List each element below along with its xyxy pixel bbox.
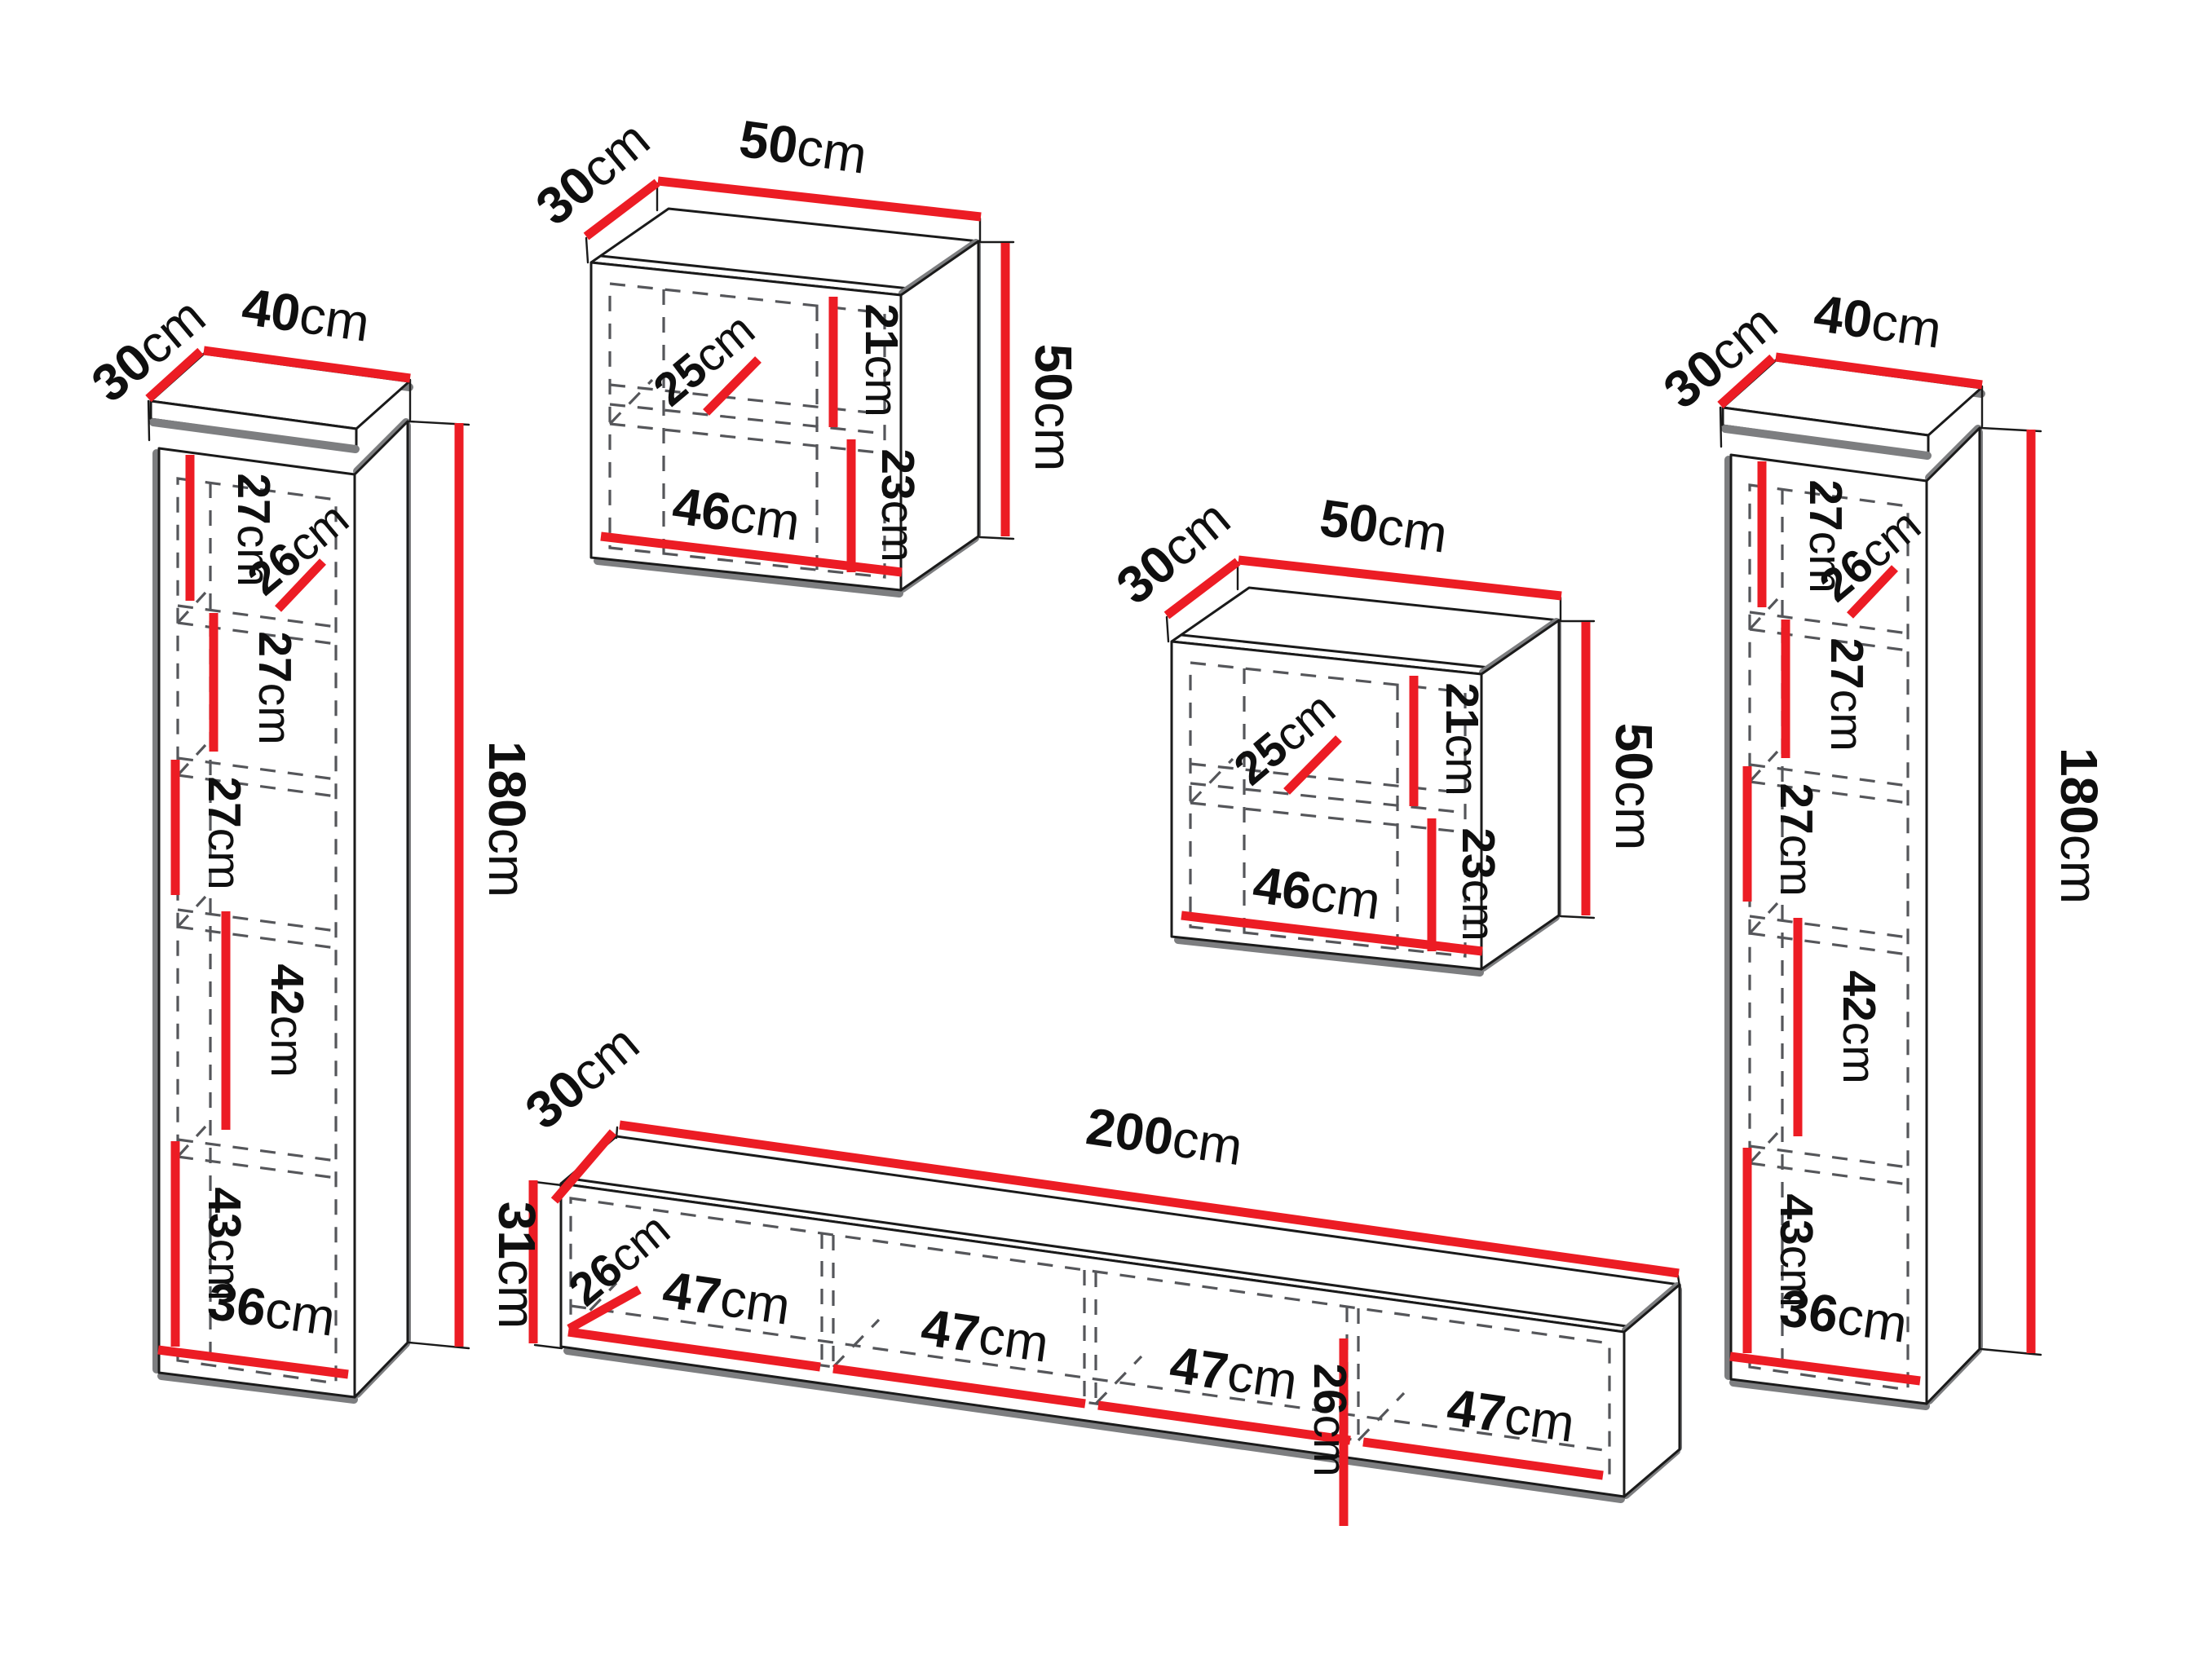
height-label: 50cm bbox=[1605, 723, 1663, 851]
height-label: 180cm bbox=[478, 741, 536, 897]
shelf2-label: 27cm bbox=[1821, 637, 1873, 751]
shelf3-label: 27cm bbox=[198, 776, 250, 889]
wall-cabinet-middle: 30cm 50cm 50cm 21cm 25cm 23cm 46cm bbox=[1106, 488, 1663, 972]
upper-section-label: 21cm bbox=[1436, 682, 1488, 796]
height-label: 31cm bbox=[488, 1202, 546, 1329]
inner-height-label: 26cm bbox=[1304, 1363, 1356, 1476]
wall-cabinet-top: 30cm 50cm 50cm 21cm 25cm 23cm 46cm bbox=[525, 109, 1083, 593]
depth-label: 30cm bbox=[1106, 488, 1241, 615]
upper-section-label: 21cm bbox=[855, 303, 907, 417]
width-label: 200cm bbox=[1083, 1096, 1246, 1176]
width-label: 50cm bbox=[1317, 488, 1451, 564]
height-label: 50cm bbox=[1024, 344, 1083, 472]
depth-label: 30cm bbox=[525, 109, 660, 236]
depth-label: 30cm bbox=[514, 1013, 650, 1140]
diagram-canvas: 30cm 40cm 180cm 27cm 26cm 27cm 27cm 42cm… bbox=[0, 0, 2212, 1658]
cabinet-side-face bbox=[355, 421, 408, 1397]
shelf4-label: 42cm bbox=[1833, 970, 1885, 1083]
width-label: 50cm bbox=[736, 109, 871, 185]
right-tall-cabinet: 30cm 40cm 180cm 27cm 26cm 27cm 27cm 42cm… bbox=[1653, 284, 2108, 1406]
furniture-dimensions-diagram: 30cm 40cm 180cm 27cm 26cm 27cm 27cm 42cm… bbox=[0, 0, 2212, 1658]
shelf3-label: 27cm bbox=[1770, 783, 1822, 896]
width-label: 40cm bbox=[239, 277, 373, 353]
height-label: 180cm bbox=[2050, 747, 2108, 904]
tv-stand: 30cm 200cm 31cm 26cm 47cm 47cm 47cm 47cm… bbox=[488, 1013, 1680, 1526]
lower-section-label: 23cm bbox=[872, 448, 924, 562]
cabinet-side-face bbox=[1927, 428, 1980, 1404]
shelf4-label: 42cm bbox=[261, 963, 313, 1077]
left-tall-cabinet: 30cm 40cm 180cm 27cm 26cm 27cm 27cm 42cm… bbox=[81, 277, 536, 1400]
shelf2-label: 27cm bbox=[249, 631, 301, 744]
lower-section-label: 23cm bbox=[1452, 827, 1504, 941]
width-label: 40cm bbox=[1811, 284, 1945, 359]
